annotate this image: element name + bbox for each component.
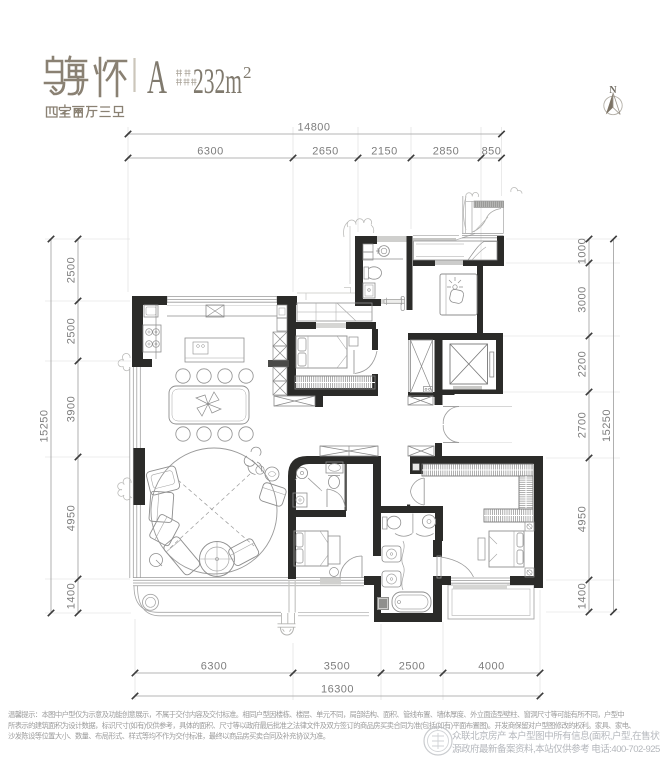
- svg-text:4000: 4000: [478, 661, 504, 673]
- svg-text:2700: 2700: [577, 412, 589, 438]
- svg-text:源政府最新备案资料,本站仅供参考 电话:400-702-92: 源政府最新备案资料,本站仅供参考 电话:400-702-9251: [452, 743, 660, 755]
- svg-text:4950: 4950: [577, 506, 589, 532]
- svg-text:温馨提示：本图中户型仅为示意及功能创意展示，不属于交付内容及: 温馨提示：本图中户型仅为示意及功能创意展示，不属于交付内容及交付标准。相同户型因…: [8, 710, 624, 719]
- svg-text:1400: 1400: [577, 583, 589, 609]
- svg-text:15250: 15250: [601, 409, 613, 442]
- svg-text:3900: 3900: [66, 396, 78, 422]
- svg-text:2500: 2500: [399, 661, 425, 673]
- svg-text:沙发陈设等位置大小、数量、布局形式、样式等均不作为交付标准，: 沙发陈设等位置大小、数量、布局形式、样式等均不作为交付标准，最终以商品房买卖合同…: [8, 732, 329, 741]
- svg-text:232m: 232m: [193, 61, 242, 101]
- svg-text:3500: 3500: [324, 661, 350, 673]
- svg-text:众联北京房产 本户型图中所有信息(面积,户型,在售状态等)来: 众联北京房产 本户型图中所有信息(面积,户型,在售状态等)来: [452, 730, 660, 742]
- svg-text:2150: 2150: [371, 146, 397, 158]
- svg-text:所表示的建筑面积为设计数据，标识尺寸(如有)仅供参考，具体的: 所表示的建筑面积为设计数据，标识尺寸(如有)仅供参考，具体的面积、尺寸等以政府最…: [8, 721, 635, 730]
- svg-text:850: 850: [482, 146, 502, 158]
- svg-text:14800: 14800: [297, 122, 330, 134]
- svg-text:16300: 16300: [321, 684, 354, 696]
- svg-text:6300: 6300: [197, 146, 223, 158]
- svg-text:2500: 2500: [66, 257, 78, 283]
- svg-text:1400: 1400: [66, 583, 78, 609]
- svg-text:2650: 2650: [312, 146, 338, 158]
- svg-text:4950: 4950: [66, 505, 78, 531]
- svg-text:3000: 3000: [577, 286, 589, 312]
- svg-text:15250: 15250: [39, 409, 51, 442]
- svg-text:2500: 2500: [66, 318, 78, 344]
- svg-text:2: 2: [243, 63, 252, 82]
- svg-text:6300: 6300: [201, 661, 227, 673]
- svg-text:2200: 2200: [577, 351, 589, 377]
- svg-text:A: A: [147, 51, 167, 104]
- svg-text:2850: 2850: [433, 146, 459, 158]
- svg-text:1000: 1000: [577, 238, 589, 264]
